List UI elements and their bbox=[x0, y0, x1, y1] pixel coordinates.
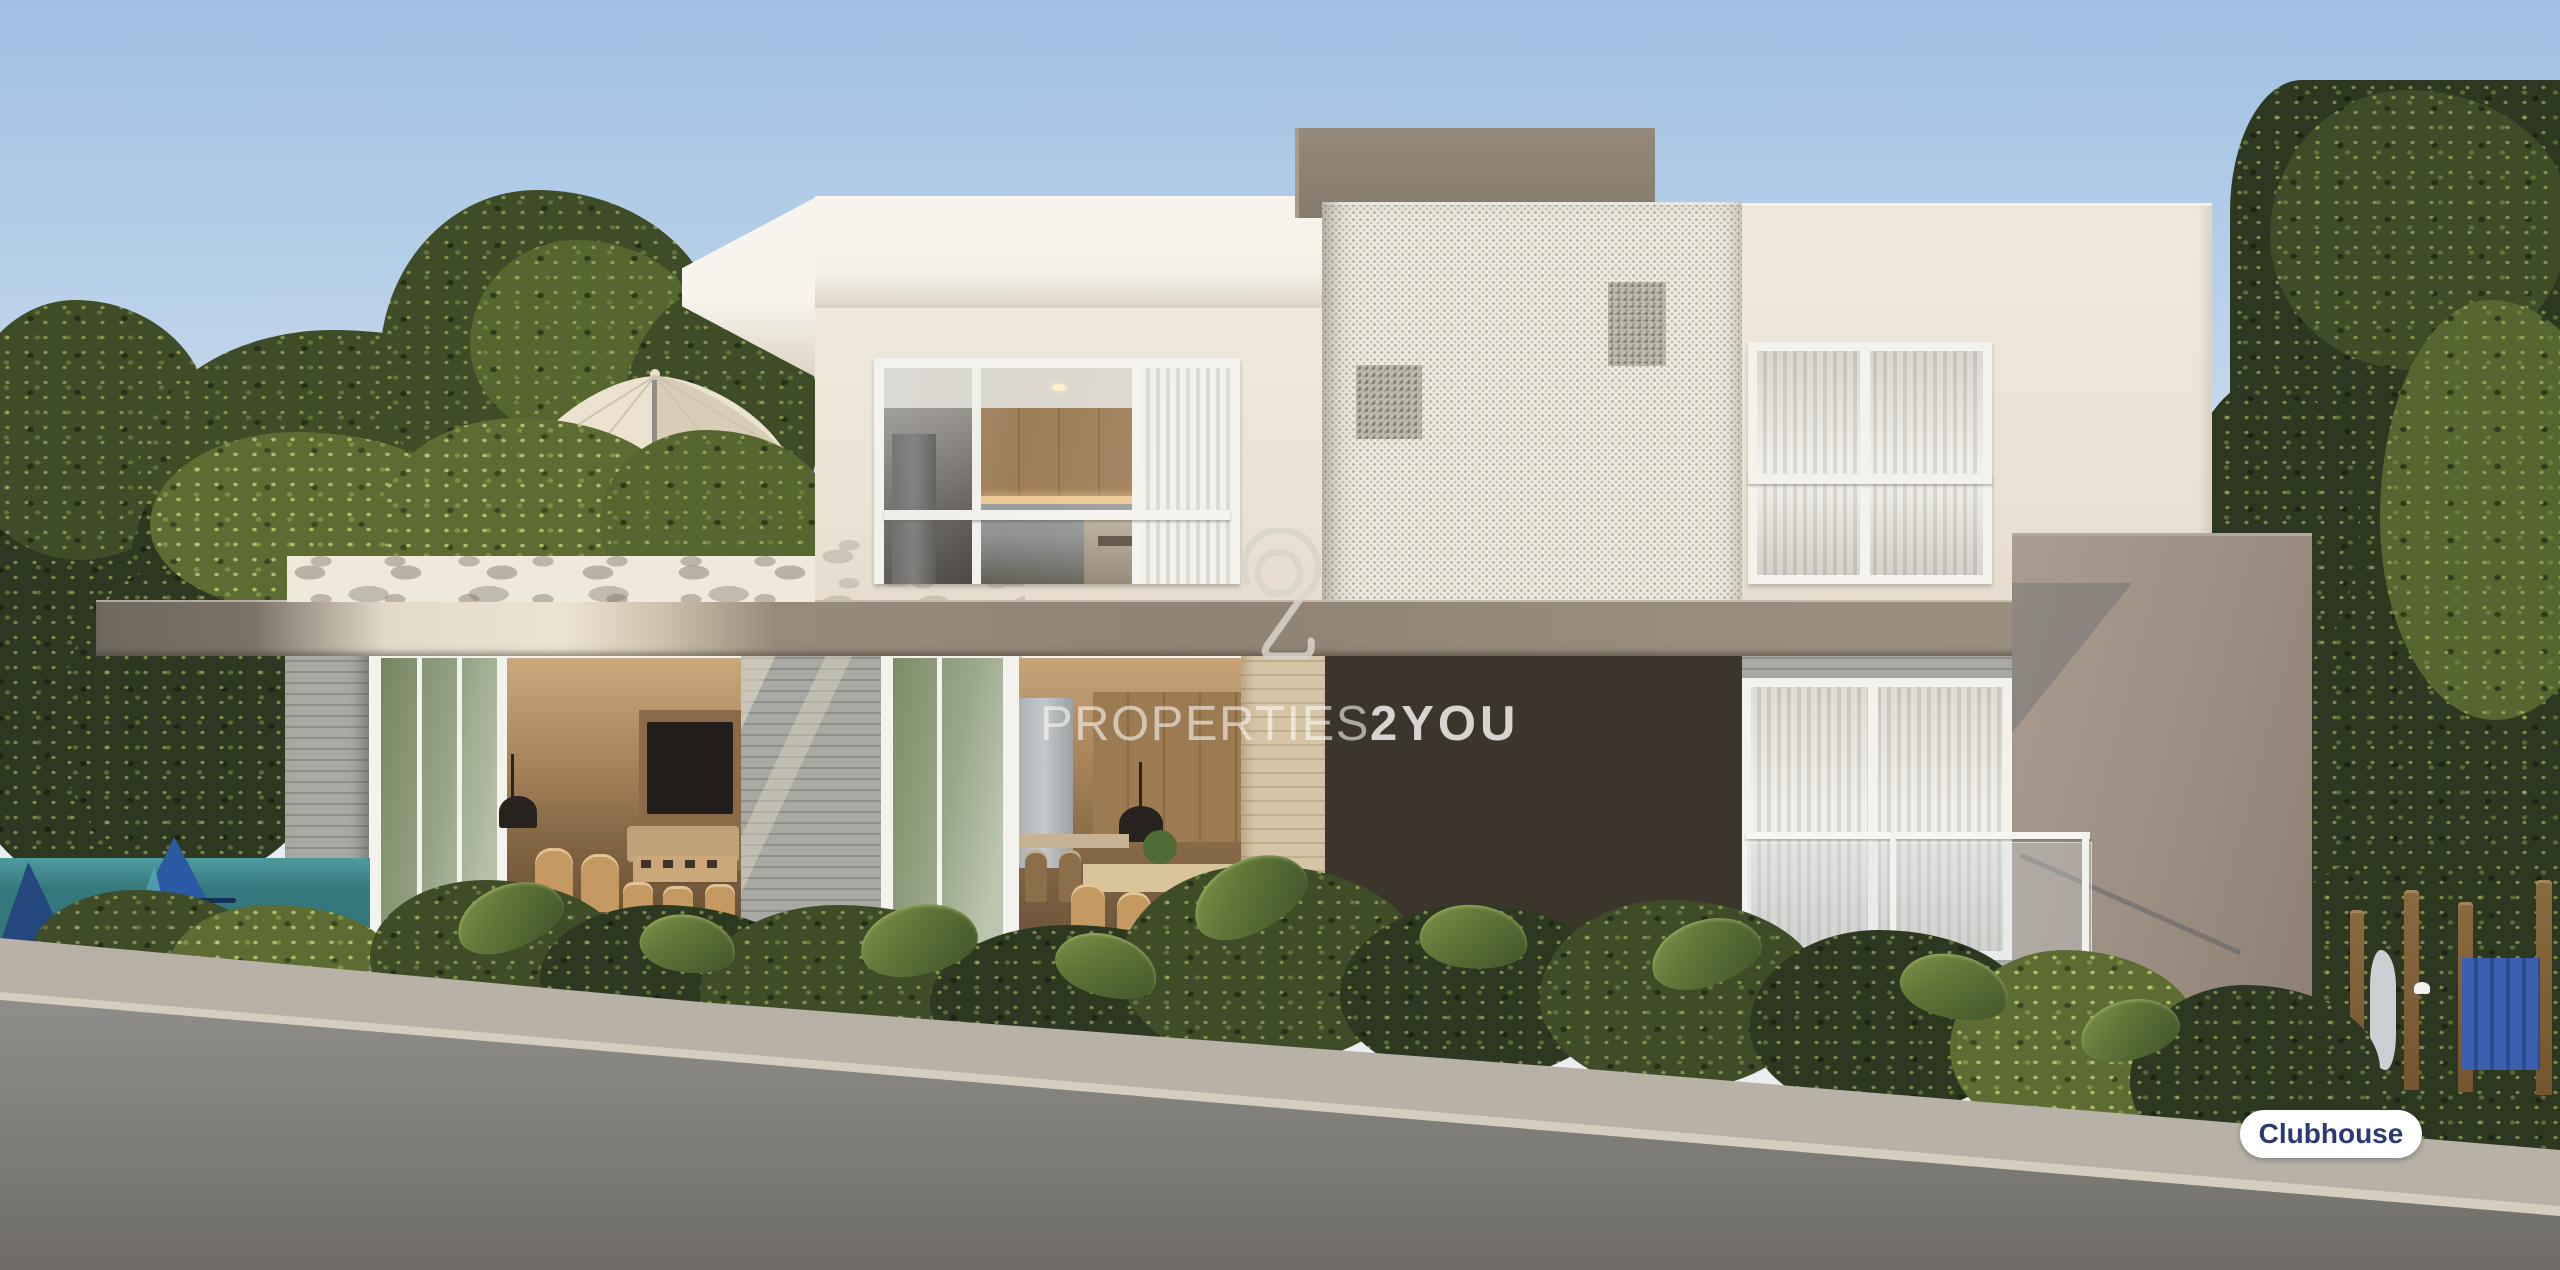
table-settings bbox=[641, 860, 729, 868]
glass-reflection bbox=[884, 368, 1230, 584]
playground-blue-panel bbox=[2462, 958, 2540, 1070]
properties2you-logo-icon bbox=[1232, 528, 1328, 676]
screen-shadow-square bbox=[1356, 365, 1422, 439]
slab-cast-shadow bbox=[2012, 583, 2132, 733]
clubhouse-badge-label: Clubhouse bbox=[2259, 1118, 2404, 1150]
fascia-band bbox=[815, 196, 1325, 308]
watermark-wordmark: PROPERTIES 2YOU bbox=[1040, 696, 1519, 752]
bar-counter bbox=[1019, 834, 1129, 848]
playground bbox=[2350, 880, 2560, 1120]
watermark-text-bold: 2YOU bbox=[1370, 696, 1519, 752]
bar-stool bbox=[1025, 850, 1047, 902]
kitchen-window bbox=[874, 358, 1240, 584]
clubhouse-badge: Clubhouse bbox=[2240, 1110, 2422, 1158]
pendant-cord bbox=[1139, 762, 1142, 810]
terrace-parapet bbox=[287, 556, 815, 602]
pendant-cord bbox=[511, 754, 514, 800]
clubhouse-rendering: PROPERTIES 2YOU Clubhouse bbox=[0, 0, 2560, 1270]
table-plant bbox=[1143, 830, 1177, 864]
upper-right-window bbox=[1748, 342, 1992, 584]
door-stile-sunlit bbox=[1003, 648, 1019, 978]
window-mullion bbox=[1860, 342, 1870, 584]
dome-lamp bbox=[499, 796, 537, 828]
curtain-shading bbox=[1757, 351, 1983, 575]
playground-lamp bbox=[2414, 982, 2430, 994]
watermark-text-thin: PROPERTIES bbox=[1040, 696, 1370, 752]
window-midrail bbox=[1748, 474, 1992, 484]
railing-top-rail bbox=[1746, 832, 2090, 839]
window-glazing bbox=[884, 368, 1230, 574]
terrace-slab-band bbox=[96, 600, 2040, 656]
screen-shadow-square bbox=[1608, 282, 1666, 366]
tv-screen bbox=[647, 722, 733, 814]
